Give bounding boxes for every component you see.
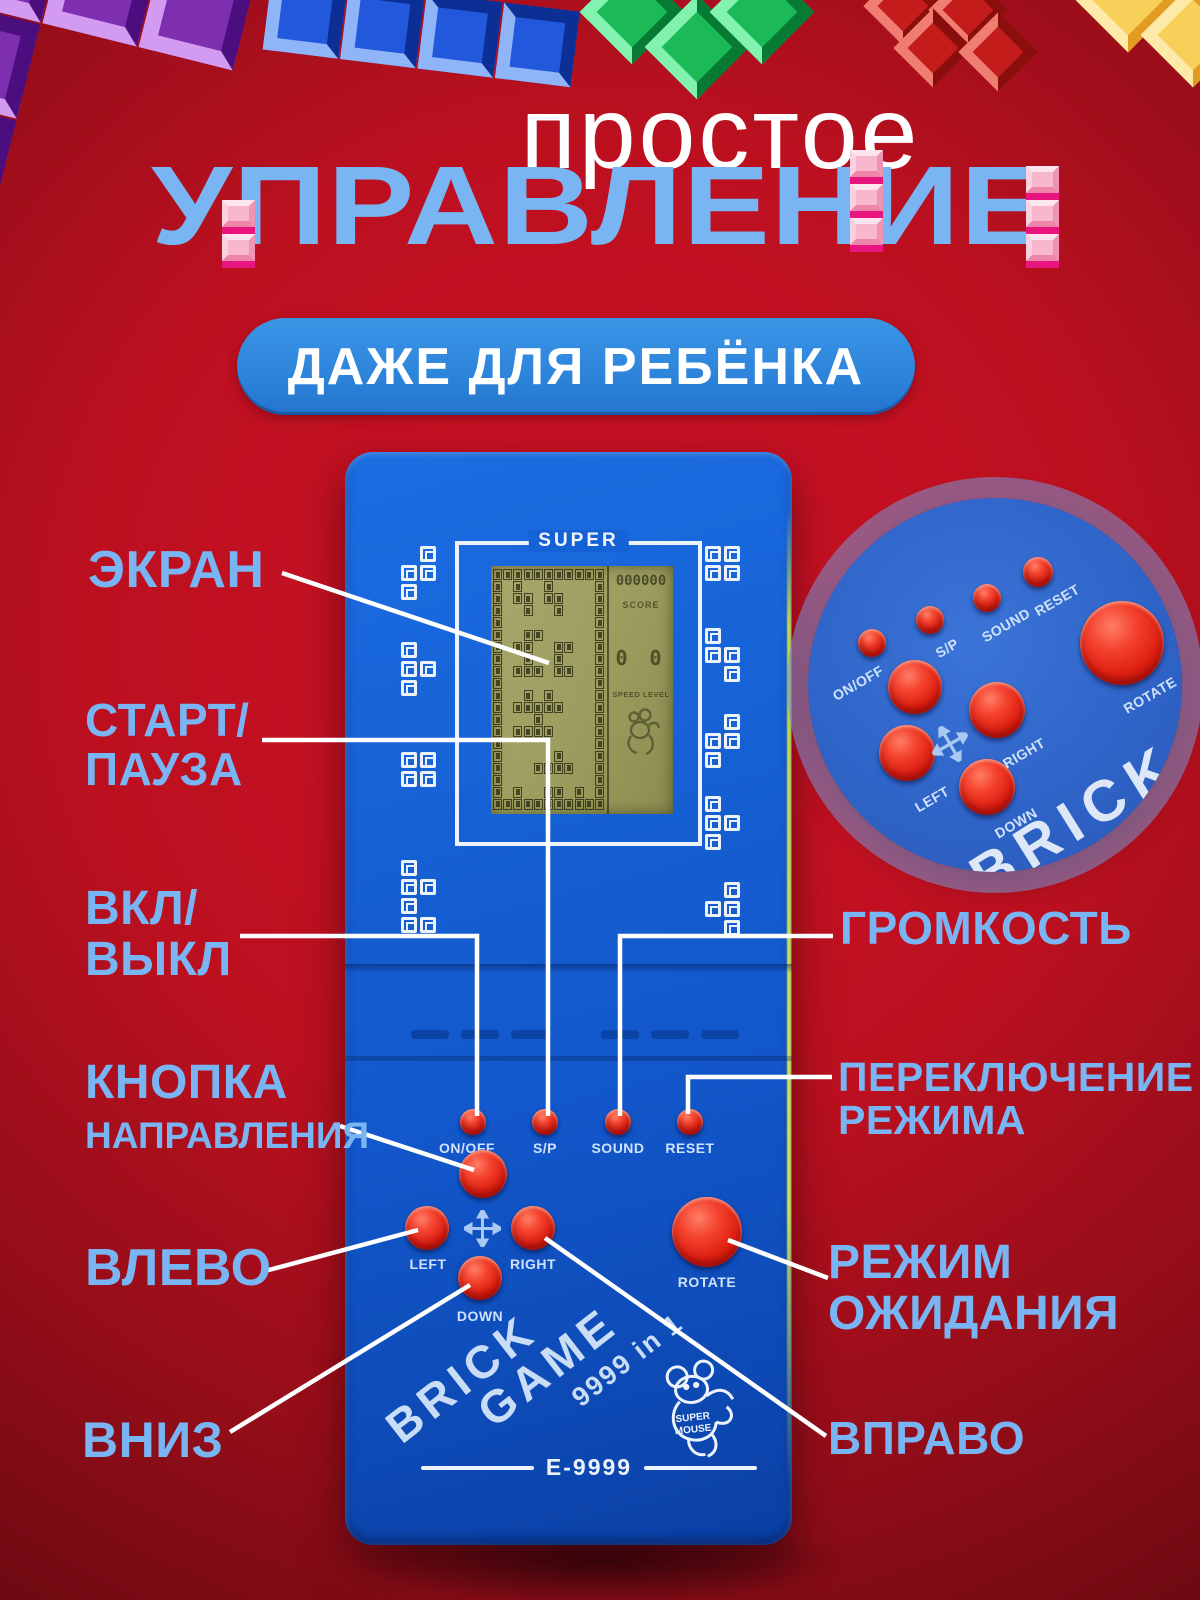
callout-mode-switch: ПЕРЕКЛЮЧЕНИЕ РЕЖИМА [838,1056,1194,1143]
inset-start-pause-button [916,606,944,634]
pink-tetris-piece [222,200,255,268]
callout-volume: ГРОМКОСТЬ [840,904,1132,953]
callout-power: ВКЛ/ ВЫКЛ [85,884,232,986]
callout-screen: ЭКРАН [88,543,264,598]
callout-standby: РЕЖИМ ОЖИДАНИЯ [828,1238,1119,1340]
callout-direction: КНОПКА НАПРАВЛЕНИЯ [85,1058,369,1155]
callout-right: ВПРАВО [828,1414,1025,1463]
inset-right-button [969,682,1025,738]
inset-rotate-button [1080,601,1164,685]
callout-start-pause: СТАРТ/ ПАУЗА [85,696,249,794]
poster: простое УПРАВЛЕНИЕ ДАЖЕ ДЛЯ РЕБЁНКА SUPE… [0,0,1200,1600]
pink-tetris-piece [850,150,883,252]
pink-tetris-piece [1026,166,1059,268]
inset-reset-button [1023,557,1053,587]
inset-on-off-button [858,629,886,657]
callout-left: ВЛЕВО [85,1241,272,1296]
inset-sound-button [973,584,1001,612]
buttons-closeup: ON/OFF S/P SOUND RESET ROTATE RIGHT LEFT… [808,498,1182,872]
callout-down: ВНИЗ [82,1414,223,1467]
